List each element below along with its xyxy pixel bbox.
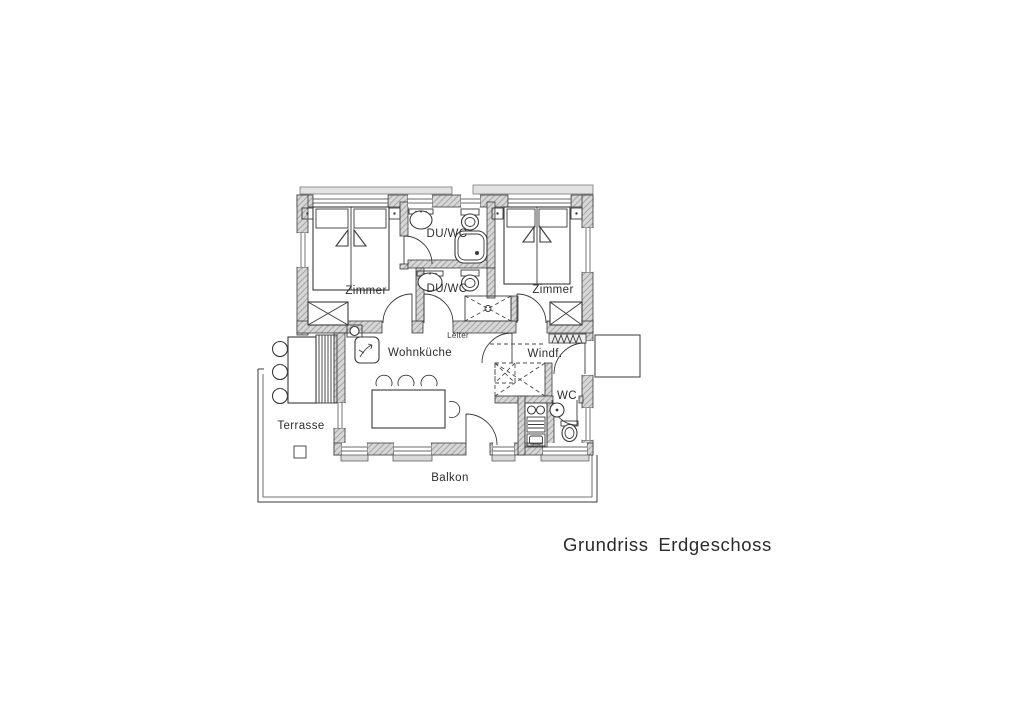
terrace-chairs-icon	[273, 342, 288, 404]
wc-toilet-icon	[561, 421, 578, 442]
label-leiter: Leiter	[447, 331, 469, 340]
window-right-zimmer-icon	[582, 228, 593, 272]
wardrobe-right-icon	[550, 302, 582, 325]
window-sill	[341, 455, 368, 461]
terrace-marker-icon	[294, 446, 306, 458]
dining-table-icon	[372, 390, 445, 428]
label-wohnkueche: Wohnküche	[388, 347, 452, 359]
shower-tray-icon	[465, 296, 511, 321]
window-zimmer-left-icon	[313, 195, 388, 207]
window-bottom-4-icon	[543, 443, 587, 455]
window-duwc-upper-icon	[408, 195, 432, 207]
door-duwc-lower	[424, 294, 453, 323]
label-wc: WC	[557, 390, 577, 402]
window-right-wc-icon	[582, 408, 593, 440]
window-bottom-2-icon	[394, 443, 431, 455]
wardrobe-left-icon	[308, 302, 348, 325]
window-sill	[541, 455, 589, 461]
double-bed-right-icon	[492, 207, 582, 284]
terrace-stairs-icon	[316, 335, 337, 403]
toilet-upper-icon	[461, 209, 479, 230]
roof-overhang	[300, 185, 593, 194]
page-title: Grundriss Erdgeschoss	[563, 534, 772, 556]
label-zimmer-right: Zimmer	[532, 284, 573, 296]
label-terrasse: Terrasse	[277, 420, 324, 432]
entrance-porch	[595, 335, 640, 377]
wc-sink-icon	[550, 403, 564, 417]
door-windfang	[482, 333, 512, 363]
label-balkon: Balkon	[431, 472, 469, 484]
floorplan-page: Zimmer DU/WC DU/WC Zimmer Wohnküche Wind…	[0, 0, 1024, 724]
terrace-table-icon	[288, 337, 316, 403]
label-windfang: Windf.	[528, 348, 563, 360]
window-bottom-3-icon	[493, 443, 514, 455]
window-sill	[393, 455, 432, 461]
window-sill	[492, 455, 515, 461]
door-zimmer-left	[383, 294, 412, 323]
window-left-wall-icon	[297, 233, 308, 267]
double-bed-left-icon	[302, 207, 400, 290]
label-duwc-lower: DU/WC	[427, 283, 468, 295]
door-balcony	[466, 414, 497, 445]
floorplan-drawing: Zimmer DU/WC DU/WC Zimmer Wohnküche Wind…	[0, 0, 1024, 724]
label-duwc-upper: DU/WC	[427, 228, 468, 240]
window-duwc-wc-icon	[461, 195, 480, 207]
window-bottom-1-icon	[342, 443, 367, 455]
door-zimmer-right	[517, 294, 546, 323]
radiator-icon	[549, 334, 586, 343]
window-west-wall-icon	[334, 403, 345, 428]
kitchen-block-icon	[525, 403, 547, 447]
label-zimmer-left: Zimmer	[345, 285, 386, 297]
sink-upper-icon	[409, 209, 433, 229]
window-zimmer-right-icon	[508, 195, 571, 207]
